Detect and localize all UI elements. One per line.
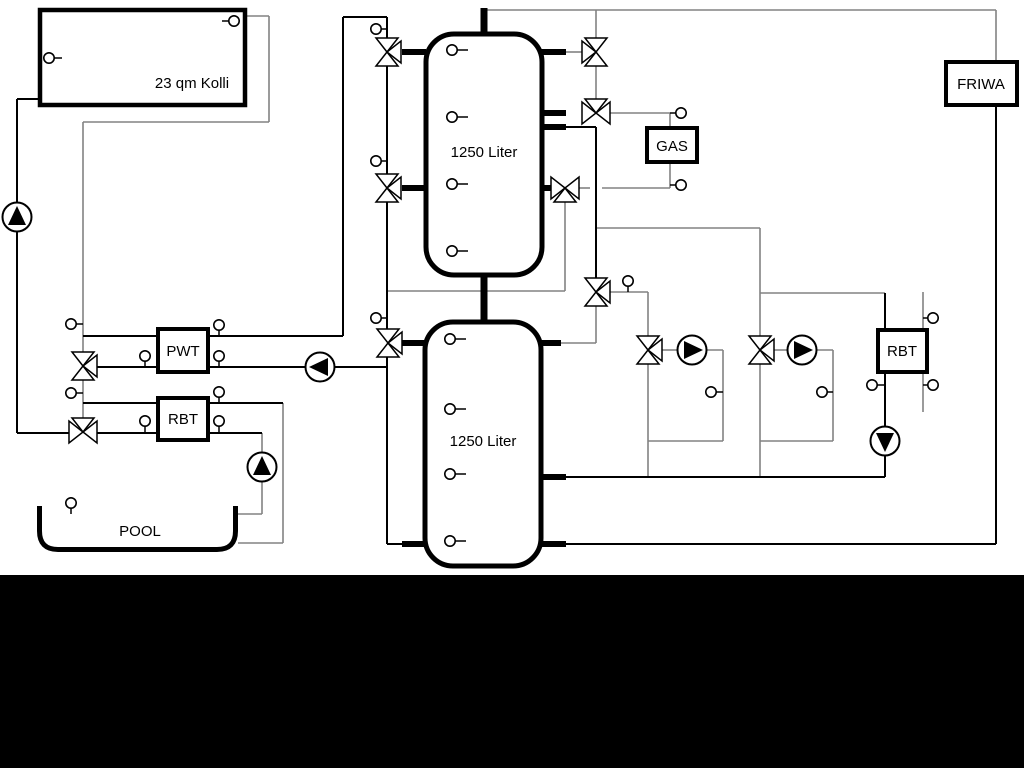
- sensor-collector-top: [229, 16, 239, 26]
- sensor-tank2-3: [445, 469, 455, 479]
- sensor-mid-valve: [623, 276, 633, 286]
- sensor-riser-1: [371, 24, 381, 34]
- sensor-rbtr-left: [867, 380, 877, 390]
- sensor-rbtr-right-2: [928, 380, 938, 390]
- sensor-circuit-2: [817, 387, 827, 397]
- sensor-gas-top: [676, 108, 686, 118]
- bottom-black-band: [0, 575, 1024, 768]
- sensor-solar-1: [66, 319, 76, 329]
- buffer-tank-1-label: 1250 Liter: [451, 144, 518, 161]
- sensor-tank2-1: [445, 334, 455, 344]
- schematic-canvas: 1250 Liter1250 LiterPOOL23 qm KolliGASFR…: [0, 0, 1024, 768]
- rbt-left-box-label: RBT: [168, 411, 198, 428]
- pwt-heat-exchanger-box-label: PWT: [166, 343, 199, 360]
- sensor-tank1-2: [447, 112, 457, 122]
- friwa-box-label: FRIWA: [957, 76, 1005, 93]
- gas-boiler-box-label: GAS: [656, 138, 688, 155]
- rbt-right-box-label: RBT: [887, 343, 917, 360]
- sensor-rbtl-bottom-left: [140, 416, 150, 426]
- sensor-riser-3: [371, 313, 381, 323]
- sensor-circuit-1: [706, 387, 716, 397]
- sensor-tank2-2: [445, 404, 455, 414]
- sensor-tank1-3: [447, 179, 457, 189]
- sensor-pwt-bottom-right: [214, 351, 224, 361]
- sensor-solar-2: [66, 388, 76, 398]
- sensor-tank1-4: [447, 246, 457, 256]
- sensor-tank1-1: [447, 45, 457, 55]
- sensor-rbtl-top-right: [214, 387, 224, 397]
- pool-label: POOL: [119, 523, 161, 540]
- sensor-tank2-4: [445, 536, 455, 546]
- sensor-riser-2: [371, 156, 381, 166]
- buffer-tank-2-label: 1250 Liter: [450, 433, 517, 450]
- sensor-gas-bottom: [676, 180, 686, 190]
- sensor-pwt-bottom-left: [140, 351, 150, 361]
- sensor-collector-left: [44, 53, 54, 63]
- solar-collector-box-label: 23 qm Kolli: [155, 75, 229, 92]
- sensor-pwt-top-right: [214, 320, 224, 330]
- sensor-rbtr-right-1: [928, 313, 938, 323]
- sensor-pool: [66, 498, 76, 508]
- hydraulic-schematic: 1250 Liter1250 LiterPOOL23 qm KolliGASFR…: [0, 0, 1024, 768]
- sensor-rbtl-bottom-right: [214, 416, 224, 426]
